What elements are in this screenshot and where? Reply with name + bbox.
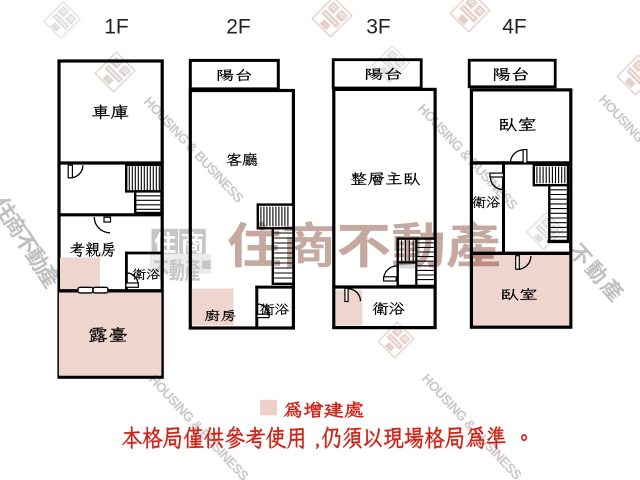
svg-text:2F: 2F (226, 16, 251, 39)
svg-text:3F: 3F (366, 16, 391, 39)
svg-text:HOUSING & BUSINESS: HOUSING & BUSINESS (419, 371, 525, 480)
svg-text:1F: 1F (104, 16, 129, 39)
svg-text:4F: 4F (502, 16, 527, 39)
svg-text:HOUSING & BUSINESS: HOUSING & BUSINESS (596, 92, 640, 204)
svg-text:HOUSING & BUSINESS: HOUSING & BUSINESS (146, 372, 252, 480)
